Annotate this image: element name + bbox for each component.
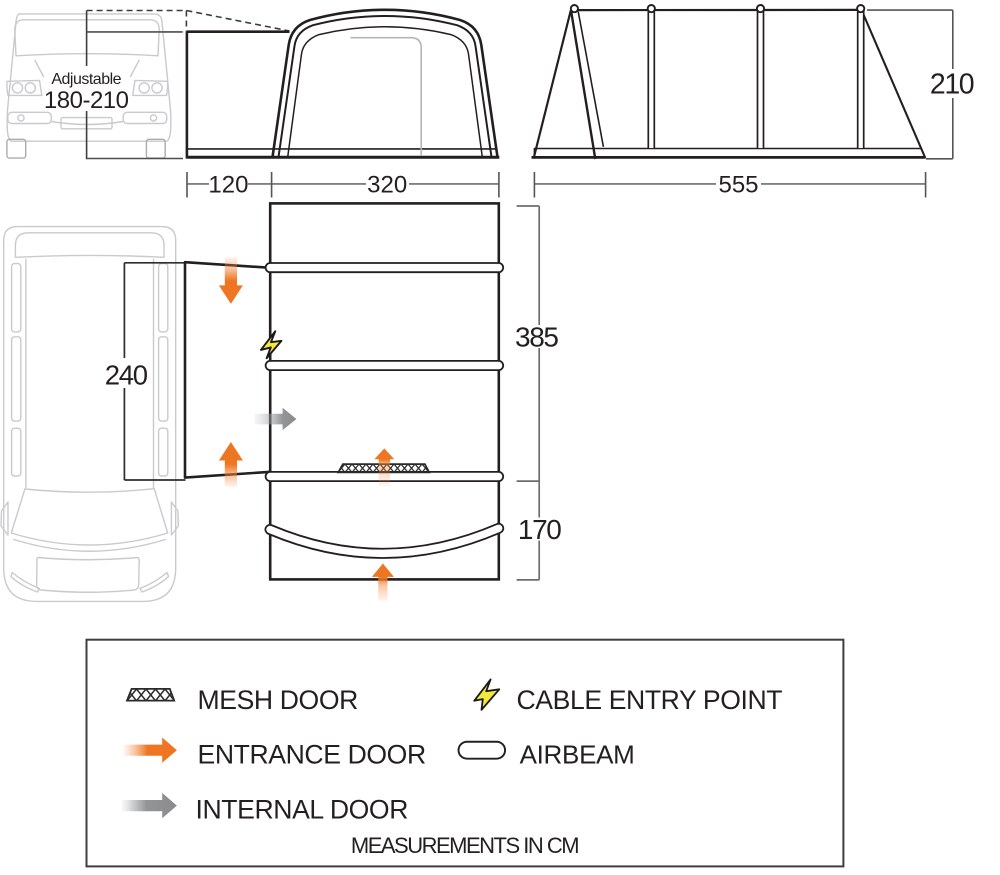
svg-text:Adjustable: Adjustable [51,71,121,88]
svg-text:170: 170 [518,514,561,545]
svg-text:385: 385 [515,322,558,353]
svg-text:AIRBEAM: AIRBEAM [520,739,635,769]
svg-text:MESH DOOR: MESH DOOR [198,685,358,715]
svg-text:INTERNAL DOOR: INTERNAL DOOR [196,795,409,825]
svg-text:CABLE ENTRY POINT: CABLE ENTRY POINT [517,685,783,715]
svg-text:ENTRANCE DOOR: ENTRANCE DOOR [198,739,426,769]
svg-text:120: 120 [208,172,248,199]
svg-text:180-210: 180-210 [44,87,129,114]
svg-text:320: 320 [367,172,407,199]
svg-text:240: 240 [105,359,148,390]
svg-text:MEASUREMENTS IN CM: MEASUREMENTS IN CM [351,833,578,858]
svg-text:210: 210 [930,69,974,101]
svg-text:555: 555 [718,172,758,199]
